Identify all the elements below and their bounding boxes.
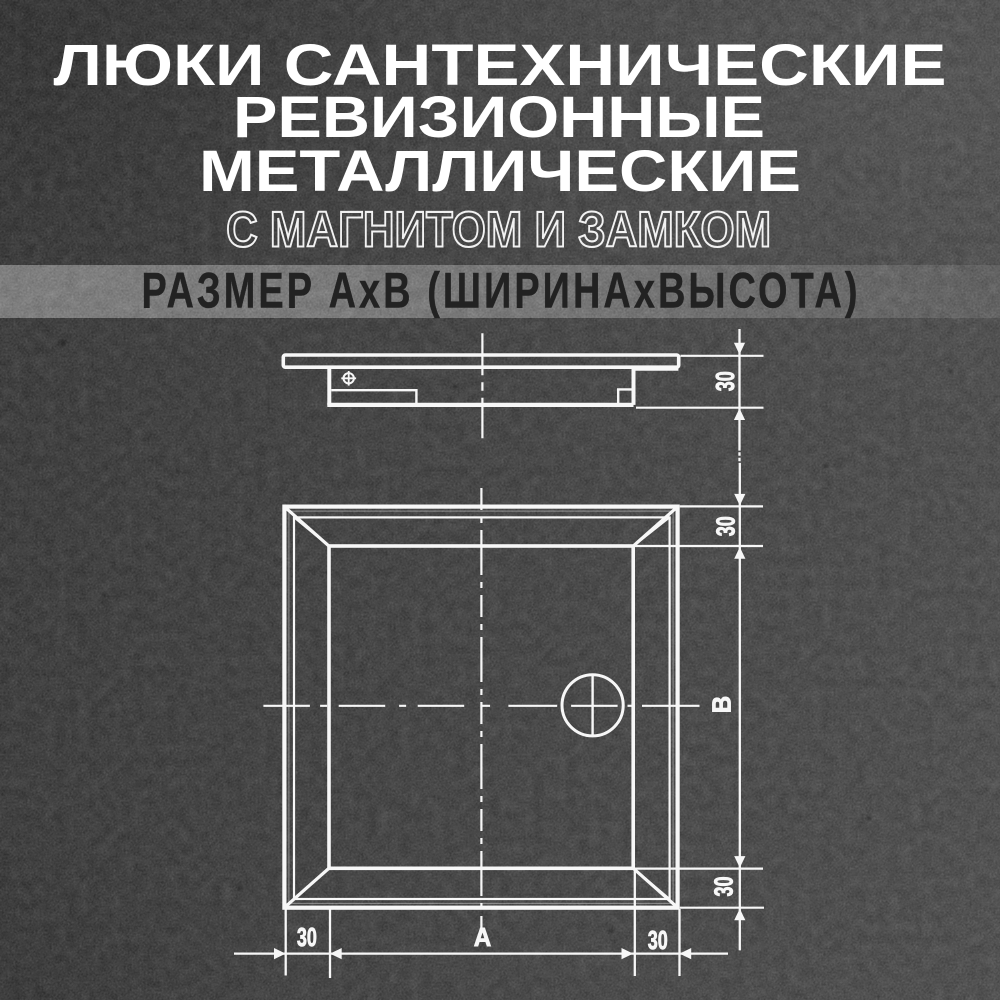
svg-text:30: 30 [648, 925, 668, 955]
svg-text:30: 30 [297, 922, 317, 952]
svg-text:30: 30 [710, 371, 740, 391]
svg-text:С МАГНИТОМ И ЗАМКОМ: С МАГНИТОМ И ЗАМКОМ [226, 201, 771, 257]
svg-text:МЕТАЛЛИЧЕСКИЕ: МЕТАЛЛИЧЕСКИЕ [199, 139, 801, 204]
svg-text:РАЗМЕР АхВ (ШИРИНАхВЫСОТА): РАЗМЕР АхВ (ШИРИНАхВЫСОТА) [142, 263, 861, 319]
svg-text:В: В [707, 696, 737, 714]
svg-text:30: 30 [710, 516, 740, 536]
svg-text:30: 30 [709, 877, 739, 897]
svg-text:А: А [474, 922, 492, 952]
